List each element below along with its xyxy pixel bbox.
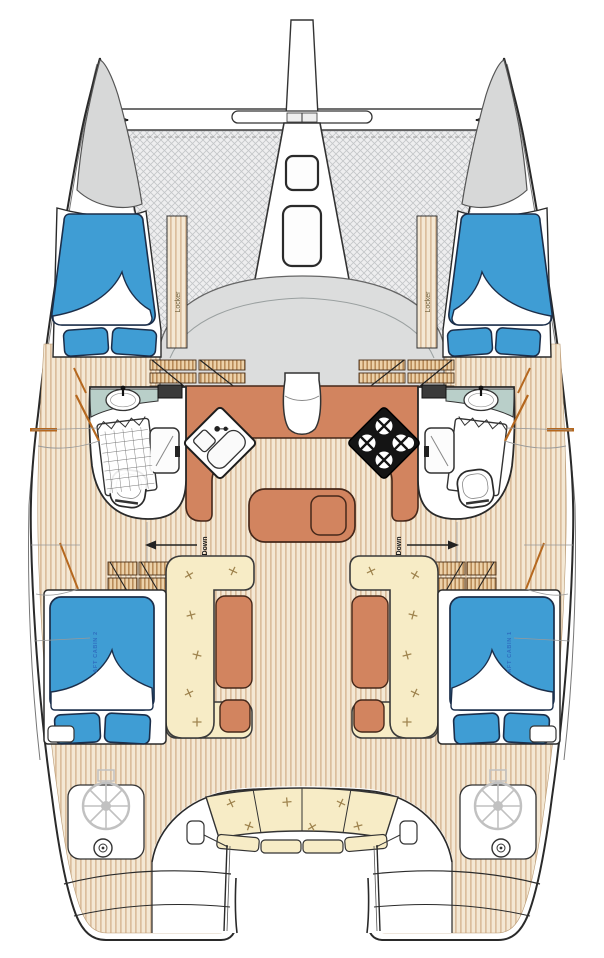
- starboard-aft-cabin-label: AFT CABIN 1: [507, 631, 513, 672]
- port-locker: [167, 216, 187, 348]
- starboard-locker-label: Locker: [425, 291, 432, 313]
- catamaran-plan-drawing: Locker Locker Down Down AFT CABIN 2 AFT …: [0, 0, 604, 958]
- bowsprit: [232, 20, 372, 123]
- port-aft-cabin-berth: [44, 590, 166, 744]
- port-forward-berth: [52, 208, 161, 357]
- port-locker-label: Locker: [175, 291, 182, 313]
- port-aft-cabin-label: AFT CABIN 2: [93, 631, 99, 672]
- port-bench-end-box: [187, 821, 204, 844]
- starboard-down-label: Down: [396, 536, 403, 555]
- deck-hatch-large: [283, 206, 321, 266]
- deck-hatch-small: [286, 156, 318, 190]
- port-down-label: Down: [202, 536, 209, 555]
- port-settee: [166, 556, 254, 738]
- starboard-aft-cabin-berth: [438, 590, 560, 744]
- starboard-forward-berth: [443, 208, 552, 357]
- mast-step: [283, 373, 320, 434]
- floor-plan: Locker Locker Down Down AFT CABIN 2 AFT …: [0, 0, 604, 958]
- starboard-settee: [350, 556, 438, 738]
- port-shower-grate: [100, 426, 155, 493]
- salon-table: [249, 489, 355, 542]
- starboard-locker: [417, 216, 437, 348]
- starboard-bench-end-box: [400, 821, 417, 844]
- starboard-head: [418, 385, 515, 519]
